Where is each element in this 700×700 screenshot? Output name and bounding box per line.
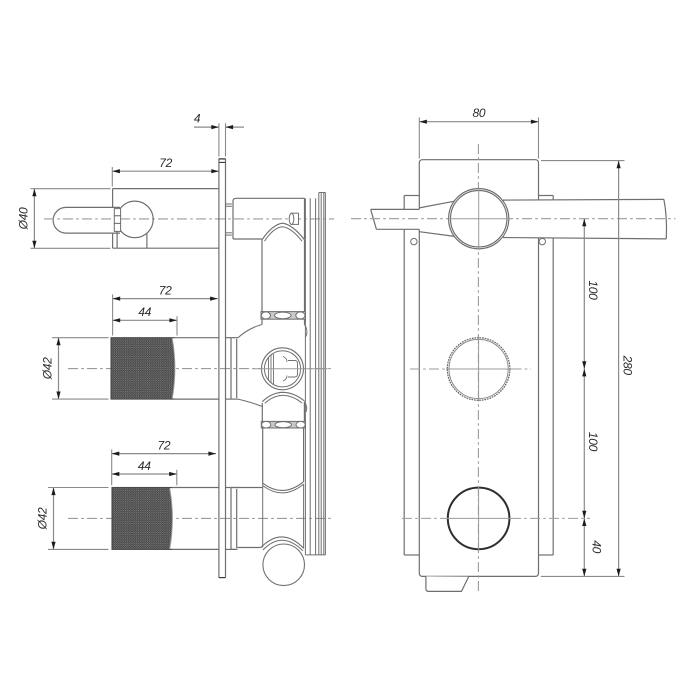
svg-text:72: 72 [159, 156, 172, 170]
svg-text:100: 100 [586, 280, 600, 300]
svg-text:44: 44 [138, 305, 151, 319]
svg-text:72: 72 [159, 283, 172, 297]
svg-text:80: 80 [473, 106, 486, 120]
svg-text:40: 40 [589, 540, 603, 553]
svg-text:280: 280 [620, 355, 634, 376]
svg-text:Ø42: Ø42 [41, 357, 55, 380]
svg-text:44: 44 [138, 459, 151, 473]
svg-text:Ø42: Ø42 [36, 507, 50, 530]
svg-text:Ø40: Ø40 [17, 207, 31, 230]
svg-text:100: 100 [586, 432, 600, 452]
svg-text:72: 72 [157, 438, 170, 452]
svg-text:4: 4 [194, 111, 201, 125]
